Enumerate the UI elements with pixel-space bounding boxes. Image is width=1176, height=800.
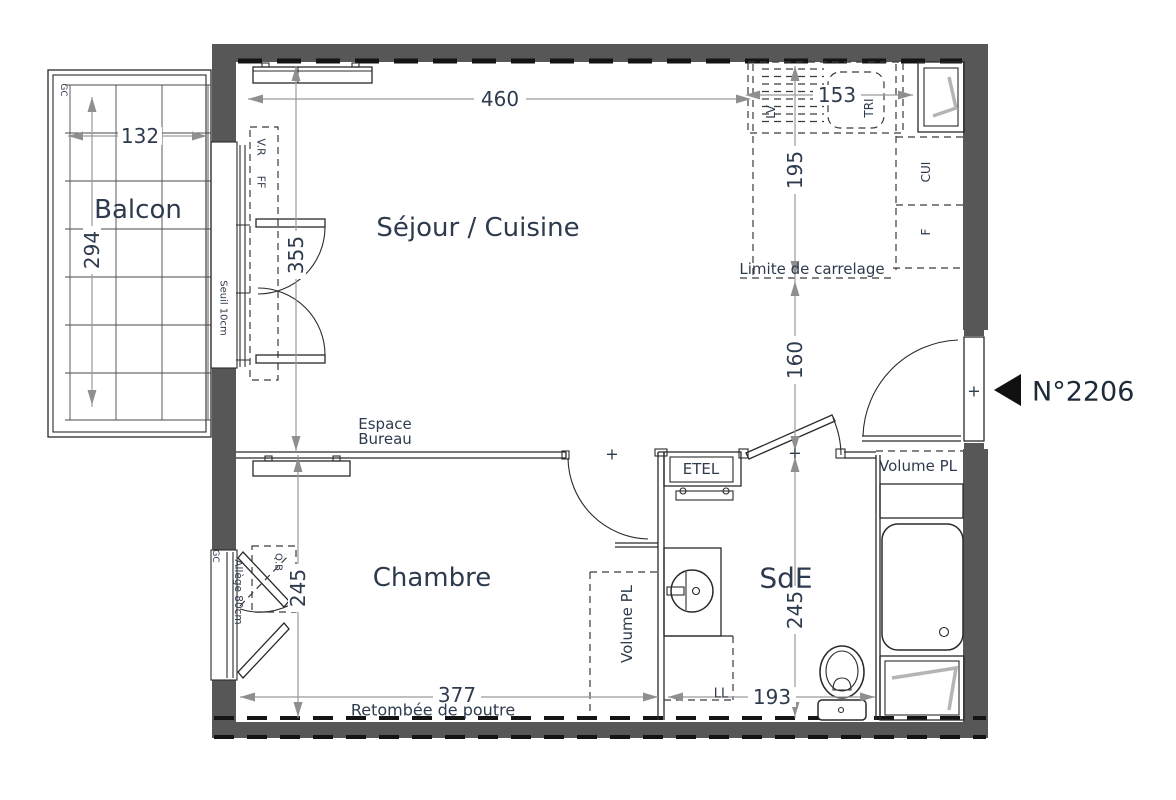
cabinet (880, 484, 963, 518)
dim-kitchen-depth: 195 (783, 151, 807, 189)
etel-label: ETEL (683, 460, 720, 478)
dim-entry-depth: 160 (783, 341, 807, 379)
sde-fixtures (818, 451, 964, 720)
door-axis-marker: + (605, 445, 618, 464)
washbasin (664, 548, 721, 636)
gc-balcony-label: GC (58, 83, 68, 96)
floor-plan-canvas: 460 153 195 160 355 245 245 377 193 132 … (0, 0, 1176, 800)
room-label-sde: SdE (759, 562, 812, 595)
beam-drop-label: Retombée de poutre (351, 701, 515, 720)
shower-tray (882, 524, 963, 650)
door-axis-marker: + (967, 382, 980, 401)
dim-balcon-depth: 294 (80, 231, 104, 269)
volume-pl-sde-label: Volume PL (879, 457, 958, 475)
espace-bureau-label-2: Bureau (358, 430, 412, 448)
unit-number-label: N°2206 (1032, 377, 1134, 408)
door-leaf-lower (256, 355, 325, 363)
dishwasher-label: LV (764, 104, 778, 118)
dim-sejour-depth: 355 (284, 236, 308, 274)
ff-label: FF (255, 176, 268, 189)
sink-label: TRI (862, 98, 876, 118)
dim-sde-width: 193 (753, 685, 791, 709)
room-label-sejour: Séjour / Cuisine (376, 213, 579, 243)
room-label-balcon: Balcon (94, 195, 182, 225)
sde-window (880, 656, 964, 720)
washing-machine-label: LL (714, 687, 729, 702)
floor-plan: 460 153 195 160 355 245 245 377 193 132 … (0, 0, 1176, 800)
dim-chambre-depth: 245 (286, 569, 310, 607)
window-opening-symbol (892, 668, 956, 710)
sill-height-label: Allège 80cm (232, 559, 244, 624)
fridge-label: F (919, 228, 933, 235)
chambre-door (568, 458, 658, 547)
entrance-arrow-icon (994, 374, 1021, 406)
towel-shelf (676, 488, 733, 500)
door-swing-arc (258, 288, 325, 355)
door-leaf-upper (256, 219, 325, 227)
door-leaf-open (862, 436, 961, 441)
cooker-label: CUI (919, 162, 933, 183)
dim-sde-depth: 245 (783, 591, 807, 629)
threshold-label: Seuil 10cm (218, 280, 229, 336)
room-label-chambre: Chambre (373, 563, 492, 593)
dim-balcon-width: 132 (121, 124, 159, 148)
sejour-radiator (253, 63, 372, 83)
gc-chambre-label: GC (210, 549, 220, 562)
bureau-desk (253, 456, 350, 476)
toilet (818, 646, 866, 720)
exterior-walls (212, 44, 988, 738)
dim-kitchen-width: 153 (818, 83, 856, 107)
roller-shutter-label: V.R (255, 138, 268, 156)
dim-sejour-width: 460 (481, 87, 519, 111)
tiling-limit-label: Limite de carrelage (739, 260, 884, 278)
cistern (818, 700, 866, 720)
door-leaf (615, 543, 658, 547)
roller-shutter-box (250, 127, 278, 380)
casement-leaf (238, 623, 289, 678)
door-swing-arc (568, 458, 648, 539)
qb-label: Q.B (273, 553, 284, 571)
volume-pl-chambre-label: Volume PL (618, 584, 636, 663)
unit-marker: N°2206 (994, 374, 1134, 408)
kitchen-window (918, 62, 964, 132)
door-swing-arc (863, 340, 958, 436)
door-axis-marker: + (788, 444, 801, 463)
window-opening-symbol (933, 77, 956, 116)
